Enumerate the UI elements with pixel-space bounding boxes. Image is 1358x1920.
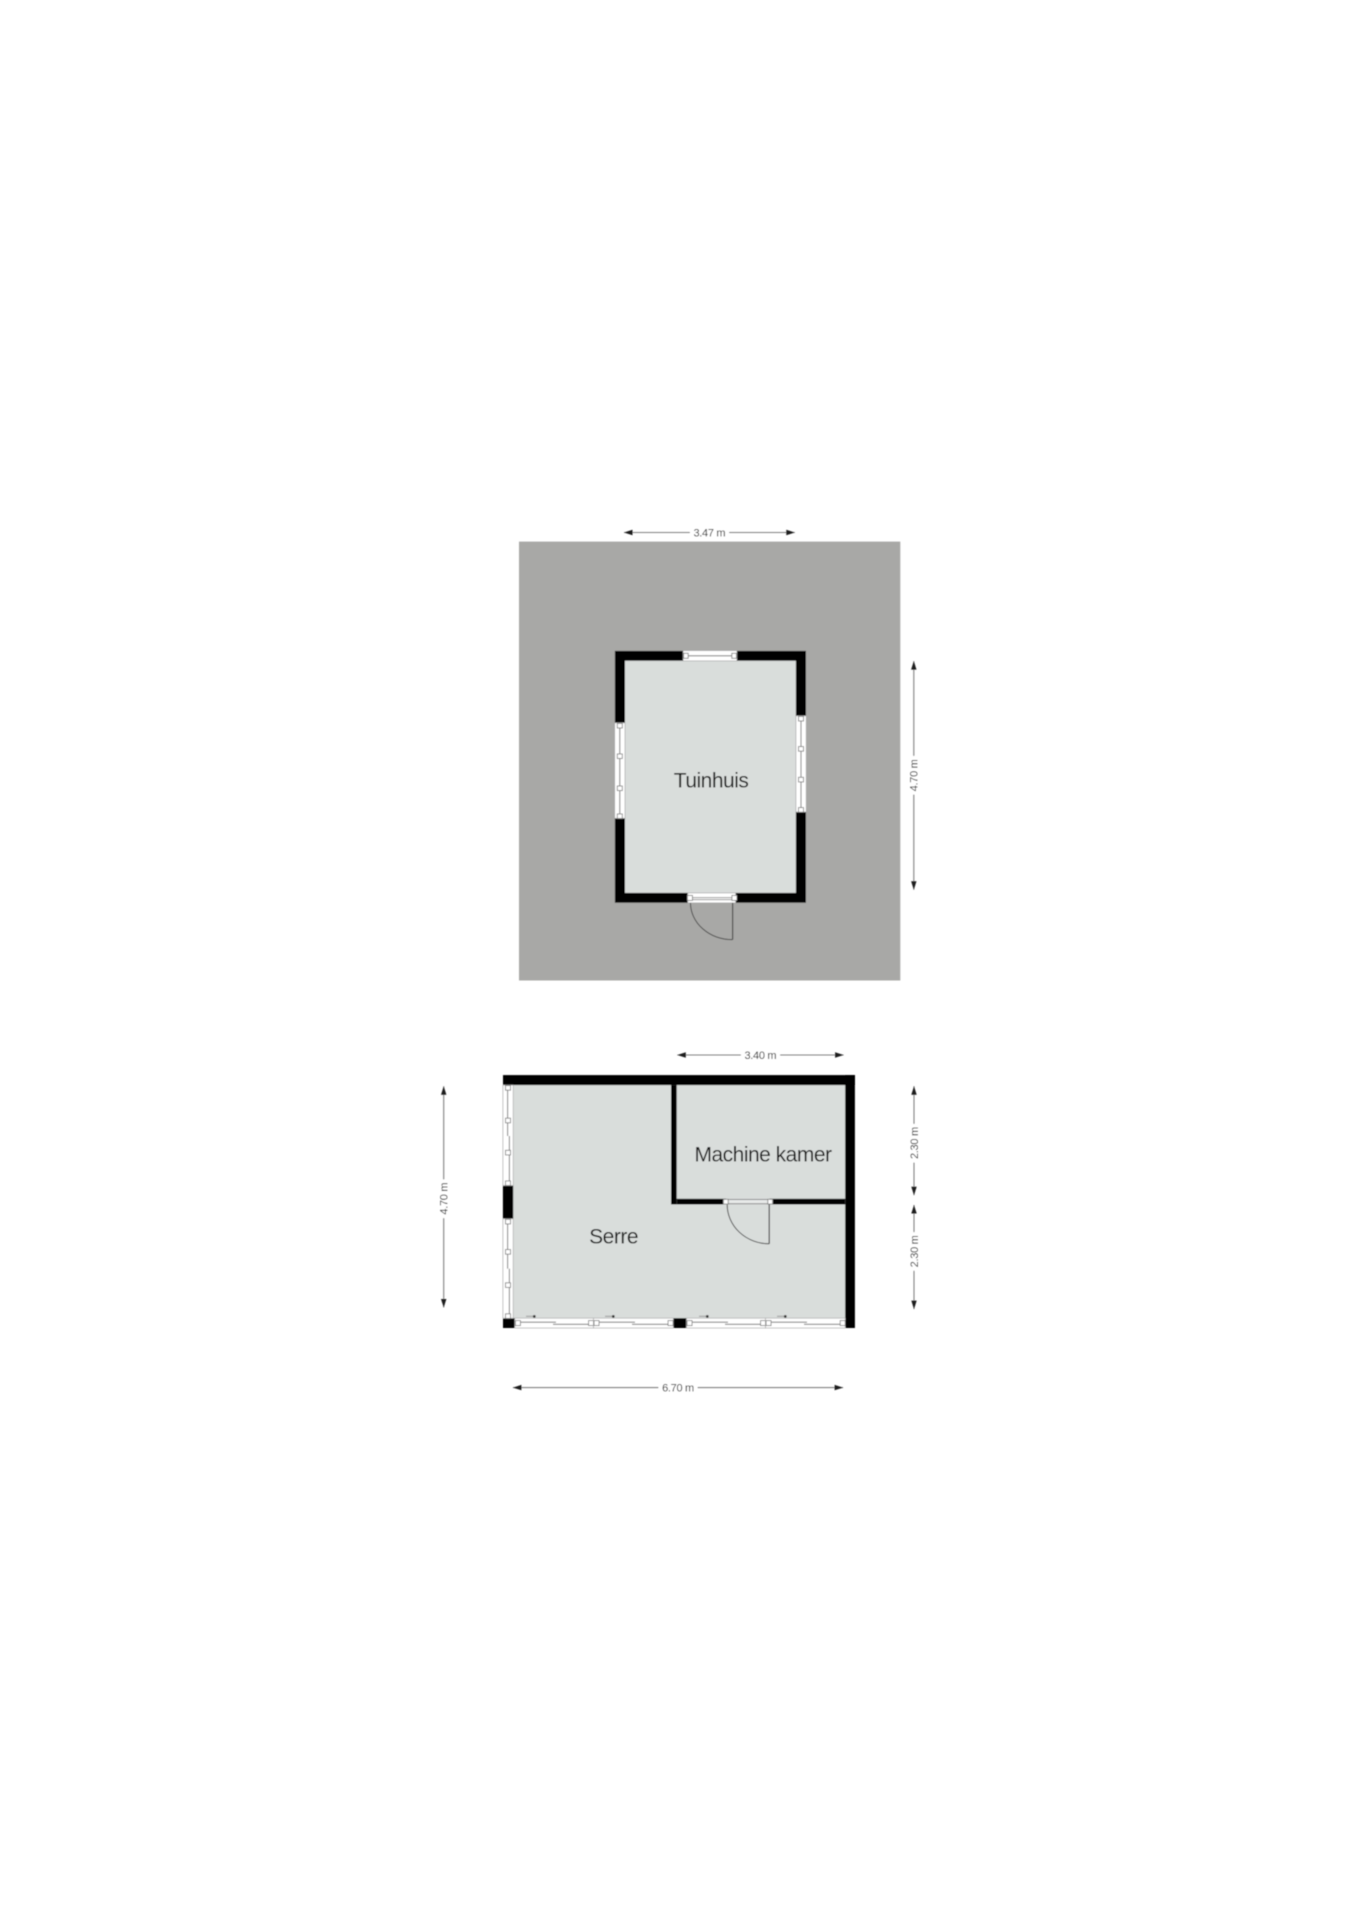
svg-text:Machine kamer: Machine kamer	[694, 1144, 832, 1167]
svg-text:4.70 m: 4.70 m	[909, 759, 921, 791]
svg-text:Tuinhuis: Tuinhuis	[674, 770, 749, 793]
svg-text:Serre: Serre	[589, 1226, 638, 1249]
svg-text:3.40 m: 3.40 m	[744, 1050, 776, 1062]
svg-text:4.70 m: 4.70 m	[439, 1183, 451, 1215]
svg-text:3.47 m: 3.47 m	[693, 527, 725, 539]
svg-text:2.30 m: 2.30 m	[909, 1235, 921, 1267]
svg-text:6.70 m: 6.70 m	[662, 1382, 694, 1394]
svg-text:2.30 m: 2.30 m	[909, 1127, 921, 1159]
